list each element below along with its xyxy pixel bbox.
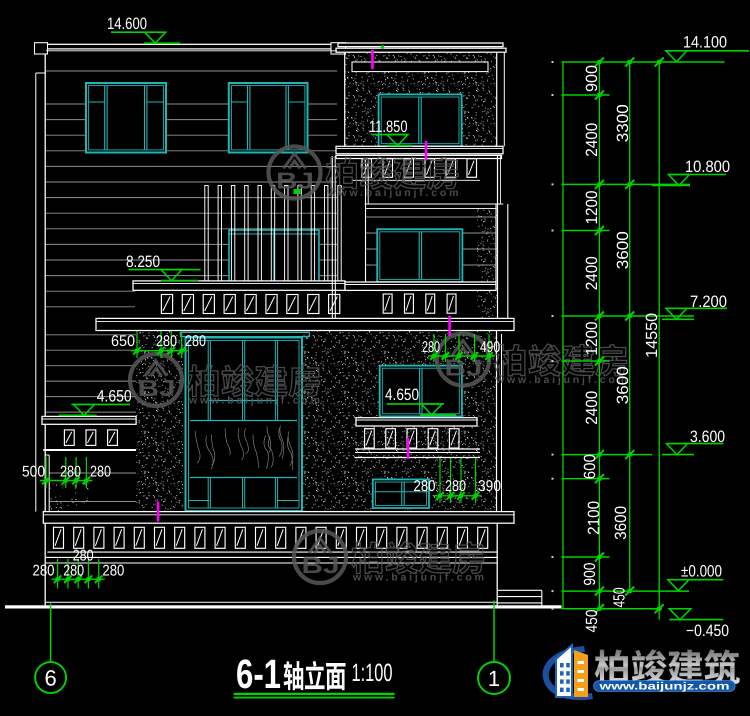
svg-text:280: 280	[414, 478, 436, 495]
svg-text:3600: 3600	[612, 506, 630, 540]
svg-text:14.100: 14.100	[683, 34, 727, 52]
svg-text:1: 1	[488, 666, 500, 691]
svg-text:3600: 3600	[614, 366, 632, 404]
svg-text:450: 450	[611, 588, 629, 608]
svg-text:650: 650	[111, 333, 135, 350]
svg-text:280: 280	[185, 333, 206, 350]
svg-text:280: 280	[60, 464, 81, 481]
svg-text:3600: 3600	[614, 231, 632, 269]
svg-text:280: 280	[156, 333, 177, 350]
svg-text:14.600: 14.600	[107, 15, 147, 33]
svg-text:3300: 3300	[614, 104, 632, 142]
svg-text:280: 280	[422, 339, 440, 356]
svg-text:280: 280	[90, 464, 111, 481]
svg-text:2400: 2400	[583, 256, 601, 290]
svg-text:4.650: 4.650	[97, 388, 132, 406]
svg-text:1:100: 1:100	[352, 659, 393, 687]
svg-text:4.650: 4.650	[385, 386, 419, 404]
svg-text:280: 280	[102, 563, 124, 580]
svg-text:±0.000: ±0.000	[681, 563, 722, 581]
svg-text:900: 900	[581, 563, 599, 586]
svg-text:8.250: 8.250	[126, 253, 160, 271]
svg-text:−0.450: −0.450	[686, 622, 729, 640]
svg-text:600: 600	[581, 454, 599, 479]
svg-text:1200: 1200	[583, 322, 601, 356]
svg-text:450: 450	[583, 610, 601, 633]
svg-text:280: 280	[33, 563, 55, 580]
svg-text:6: 6	[44, 666, 56, 691]
svg-text:2400: 2400	[583, 391, 601, 425]
svg-text:1200: 1200	[583, 191, 601, 225]
svg-text:2100: 2100	[585, 501, 603, 535]
svg-text:490: 490	[480, 339, 500, 356]
svg-text:10.800: 10.800	[685, 158, 730, 176]
svg-text:2400: 2400	[583, 123, 601, 157]
svg-text:www.baijunjz.com: www.baijunjz.com	[598, 680, 729, 692]
svg-text:390: 390	[478, 478, 501, 495]
svg-text:280: 280	[63, 563, 84, 580]
svg-text:14550: 14550	[643, 313, 661, 358]
svg-text:900: 900	[583, 65, 601, 92]
svg-text:11.850: 11.850	[369, 118, 408, 136]
svg-text:500: 500	[22, 464, 45, 481]
svg-text:6-1: 6-1	[236, 651, 281, 697]
svg-text:280: 280	[445, 478, 466, 495]
